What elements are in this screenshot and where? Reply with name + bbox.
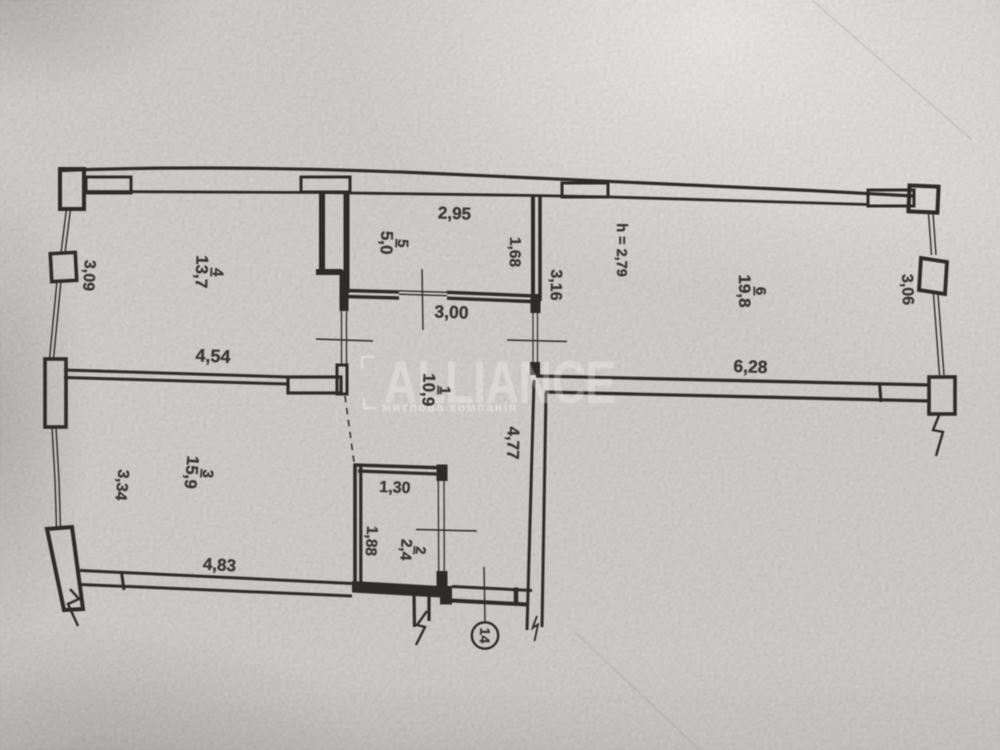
svg-text:3,16: 3,16 [547,269,565,301]
svg-text:2,95: 2,95 [438,203,472,223]
svg-text:1,30: 1,30 [379,479,411,497]
svg-text:1,88: 1,88 [362,525,381,556]
svg-text:2,4: 2,4 [396,538,414,561]
svg-text:14: 14 [477,627,494,643]
svg-text:6,28: 6,28 [733,356,768,377]
svg-text:житлова компанія: житлова компанія [381,401,518,415]
svg-text:3,00: 3,00 [434,301,469,322]
svg-text:10,9: 10,9 [418,373,438,407]
svg-text:15,9: 15,9 [181,455,203,490]
svg-text:4,54: 4,54 [195,345,231,367]
svg-text:2: 2 [413,546,429,555]
svg-text:19,8: 19,8 [735,274,754,307]
svg-text:3,34: 3,34 [111,469,131,502]
svg-text:13,7: 13,7 [191,255,211,289]
svg-text:3,09: 3,09 [79,259,98,291]
svg-text:3,06: 3,06 [898,274,916,306]
svg-text:h = 2,79: h = 2,79 [613,223,629,277]
svg-text:4,77: 4,77 [503,426,523,459]
svg-text:4,83: 4,83 [202,555,236,576]
svg-text:5,0: 5,0 [377,231,397,255]
svg-text:1,68: 1,68 [506,237,524,268]
